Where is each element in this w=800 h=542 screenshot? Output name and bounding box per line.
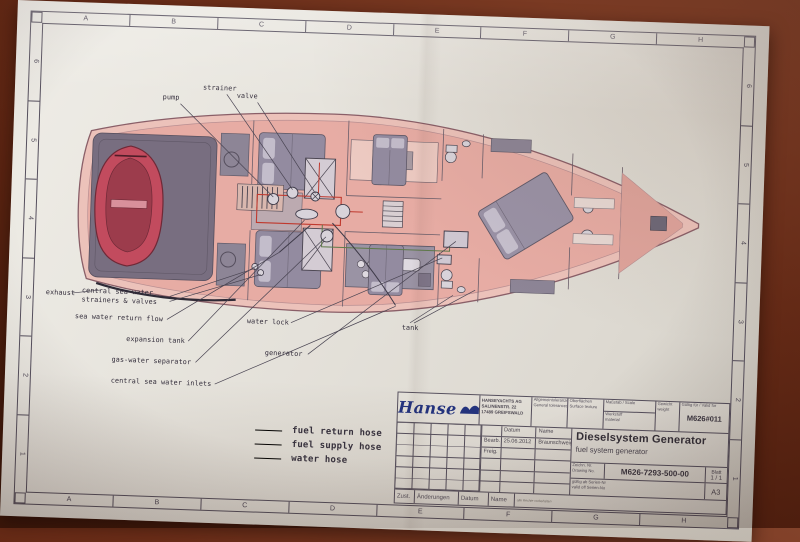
grid-number: 1 <box>15 415 29 493</box>
grid-letter: H <box>640 514 727 528</box>
grid-ruler-left: 6 5 4 3 2 1 <box>15 22 43 492</box>
legend-label: fuel return hose <box>292 426 382 439</box>
grid-letter: G <box>552 511 640 525</box>
label-exhaust: exhaust <box>46 288 76 297</box>
label-strainer: strainer <box>203 84 237 93</box>
grid-number: 5 <box>26 101 40 180</box>
grid-letter: F <box>465 508 553 522</box>
grid-letter: H <box>657 33 744 47</box>
frame-corner <box>31 11 42 22</box>
water-hose-swatch <box>254 457 281 459</box>
grid-ruler-right: 6 5 4 3 2 1 <box>726 47 754 517</box>
label-central-sea-water-strainers: central sea water strainers & valves <box>81 286 174 307</box>
bearb-date: 25.06.2012 <box>501 437 536 448</box>
fuel-return-hose-swatch <box>255 429 282 431</box>
doc-code-cell: Gültig für / Valid for M626#011 <box>679 402 729 433</box>
title-section: Dieselsystem Generator fuel system gener… <box>570 429 728 500</box>
bearb-name: Braunschweig <box>536 439 571 450</box>
frame-corner <box>727 517 738 528</box>
grid-number: 3 <box>733 283 747 362</box>
grid-ruler-top: A B C D E F G H <box>42 12 744 48</box>
grid-number: 6 <box>28 22 42 101</box>
sheet-number-cell: Blatt 1 / 1 <box>705 467 728 483</box>
label-pump: pump <box>163 93 180 102</box>
name-header: Name <box>536 427 571 438</box>
company-address: HANSEYACHTS AG SALINENSTR. 22 17489 GREI… <box>479 395 532 426</box>
photo-of-drawing: { "sheet": { "grid": { "letters": ["A","… <box>0 0 800 528</box>
grid-letter: A <box>25 493 113 507</box>
grid-number: 3 <box>20 258 34 337</box>
grid-letter: B <box>113 496 201 510</box>
grid-letter: B <box>130 15 218 29</box>
doc-code: M626#011 <box>680 413 729 424</box>
grid-number: 2 <box>730 361 744 440</box>
title-block: Hanse HANSEYACHTS AG SALINENSTR. 22 1748… <box>394 391 731 515</box>
grid-letter: G <box>569 30 657 44</box>
grid-number: 4 <box>736 204 750 283</box>
grid-number: 6 <box>741 47 755 126</box>
fuel-supply-hose-swatch <box>255 443 282 445</box>
grid-letter: A <box>42 12 130 26</box>
frame-corner <box>744 36 755 47</box>
hanse-logo: Hanse <box>398 393 481 425</box>
label-tank: tank <box>402 324 419 333</box>
weight-cell: Gewicht weight <box>655 402 680 432</box>
label-generator: generator <box>265 349 303 358</box>
grid-letter: C <box>201 499 289 513</box>
grid-letter: D <box>306 21 394 35</box>
grid-number: 2 <box>18 336 32 415</box>
grid-letter: C <box>218 18 306 32</box>
grid-letter: E <box>377 505 465 519</box>
legend-label: water hose <box>291 454 348 466</box>
grid-number: 4 <box>23 179 37 258</box>
footer-datum-label: Datum <box>459 492 489 506</box>
hose-legend: fuel return hose fuel supply hose water … <box>254 423 382 469</box>
tolerances-cell: Allgemeintoleranzen General tolerances <box>531 397 568 427</box>
approval-table: Datum Name Bearb. 25.06.2012 Braunschwei… <box>480 425 572 494</box>
legend-label: fuel supply hose <box>291 440 381 453</box>
format-cell: A3 <box>704 483 727 500</box>
grid-number: 5 <box>738 126 752 205</box>
hanse-logo-text: Hanse <box>398 398 457 419</box>
footer-name-label: Name <box>489 493 515 507</box>
zust-label: Zust. <box>395 489 415 503</box>
surface-cell: Oberflächen Surface texture <box>567 398 604 428</box>
revision-grid <box>395 423 482 492</box>
drawing-sheet: A B C D E F G H A B C D E F G H 6 5 4 3 … <box>0 0 770 542</box>
grid-number: 1 <box>727 440 741 518</box>
frame-corner <box>14 492 25 503</box>
aenderungen-label: Änderungen <box>415 490 459 505</box>
scale-material-cell: Maßstab / Scale Werkstoff material <box>603 400 656 431</box>
grid-letter: F <box>481 27 569 41</box>
label-valve: valve <box>237 92 258 101</box>
grid-letter: D <box>289 502 377 516</box>
grid-letter: E <box>394 24 482 38</box>
bearb-label: Bearb. <box>482 437 502 448</box>
hanse-wave-icon <box>460 403 480 417</box>
datum-header: Datum <box>502 426 537 437</box>
label-water-lock: water lock <box>247 317 289 326</box>
freig-label: Freig. <box>481 448 501 459</box>
